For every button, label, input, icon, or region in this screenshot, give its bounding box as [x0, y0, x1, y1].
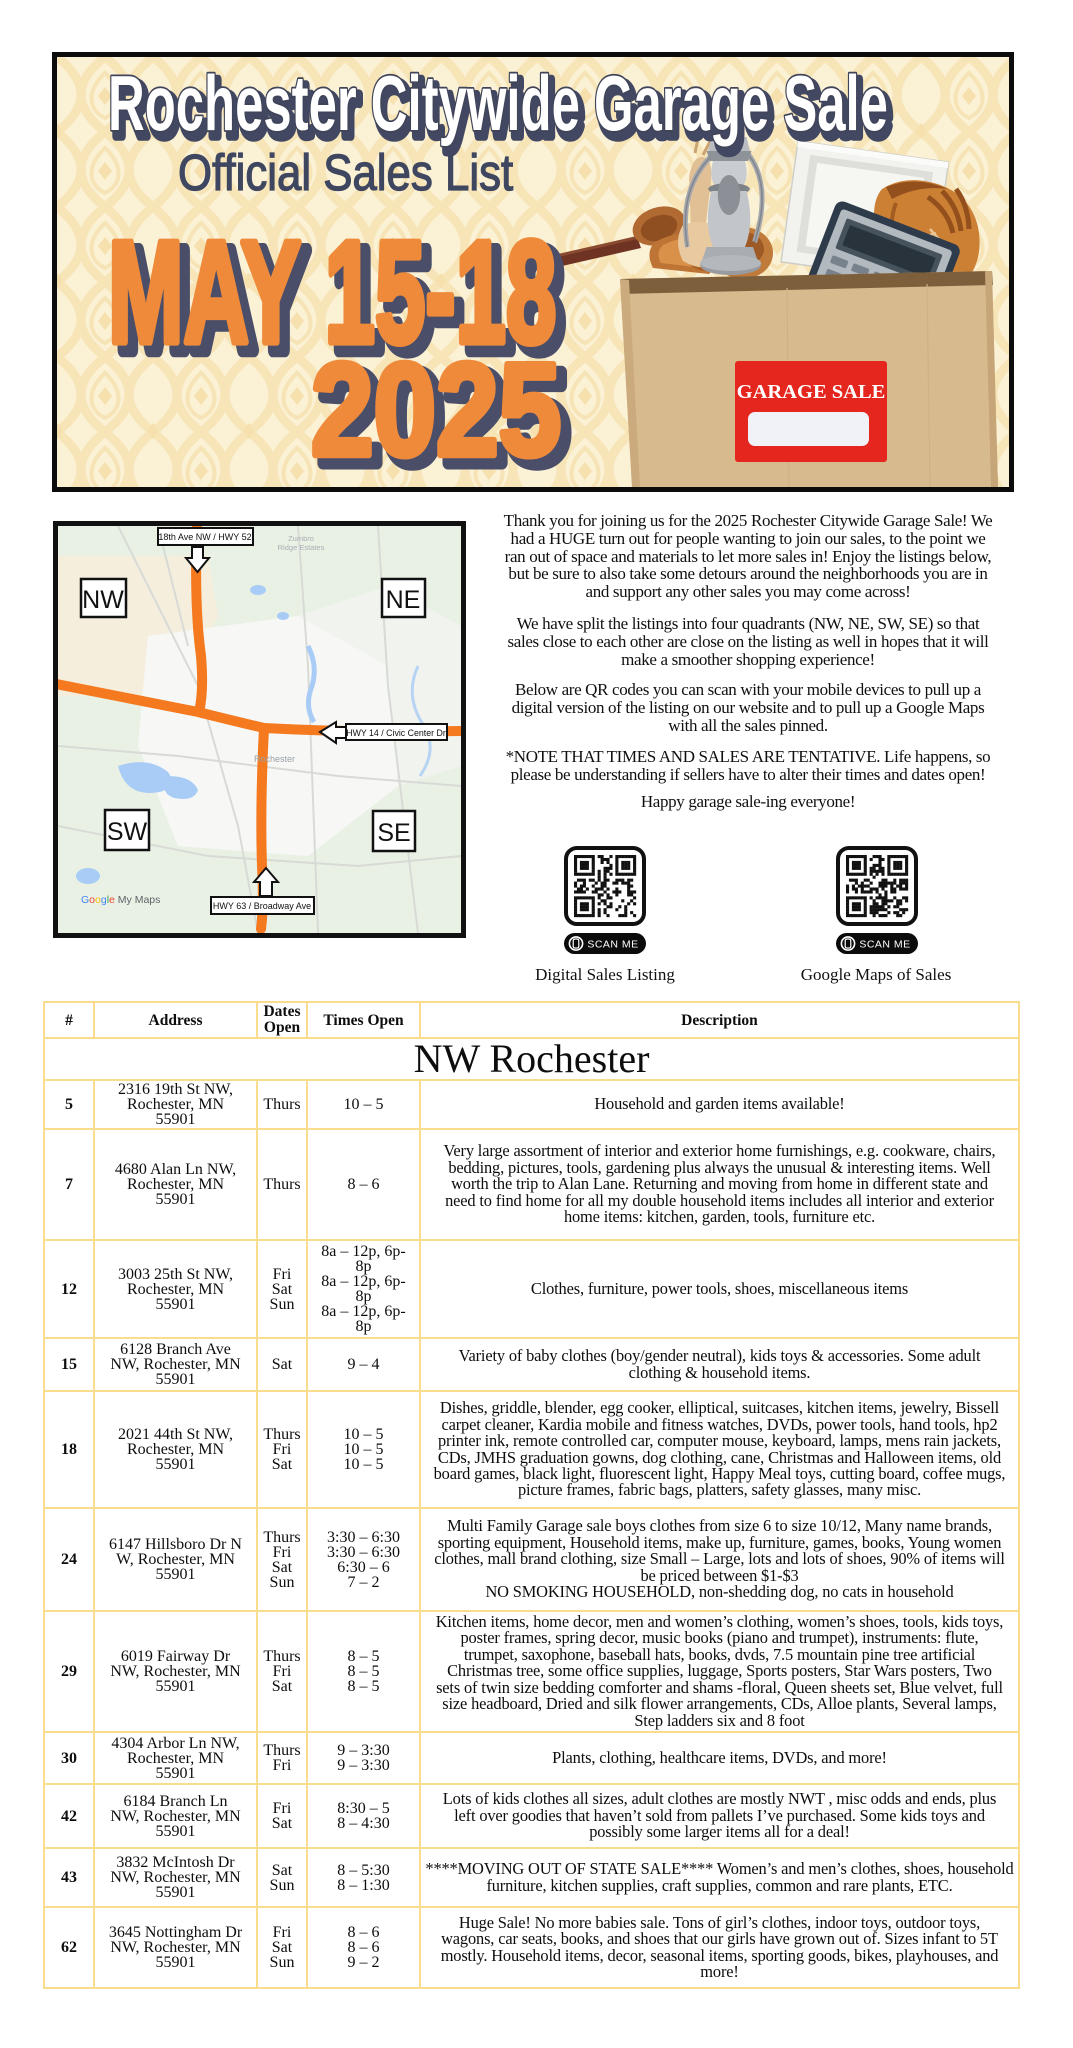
svg-text:Rochester: Rochester: [254, 754, 295, 764]
svg-text:NW: NW: [82, 586, 124, 614]
svg-text:Google My Maps: Google My Maps: [81, 894, 160, 906]
svg-text:NE: NE: [386, 586, 421, 614]
svg-text:2025: 2025: [311, 336, 561, 483]
svg-text:Official Sales List: Official Sales List: [178, 145, 513, 202]
svg-text:Ridge Estates: Ridge Estates: [278, 543, 325, 552]
svg-text:HWY 14 / Civic Center Dr: HWY 14 / Civic Center Dr: [346, 728, 446, 738]
svg-text:SE: SE: [377, 819, 410, 847]
svg-text:HWY 63 / Broadway Ave: HWY 63 / Broadway Ave: [213, 901, 311, 911]
svg-text:Rochester Citywide Garage Sale: Rochester Citywide Garage Sale: [108, 59, 888, 147]
svg-text:SW: SW: [107, 818, 148, 846]
svg-text:18th Ave NW / HWY 52: 18th Ave NW / HWY 52: [158, 532, 251, 542]
svg-text:SCAN ME: SCAN ME: [859, 938, 910, 950]
svg-text:Zumbro: Zumbro: [288, 534, 314, 543]
svg-text:SCAN ME: SCAN ME: [587, 938, 638, 950]
